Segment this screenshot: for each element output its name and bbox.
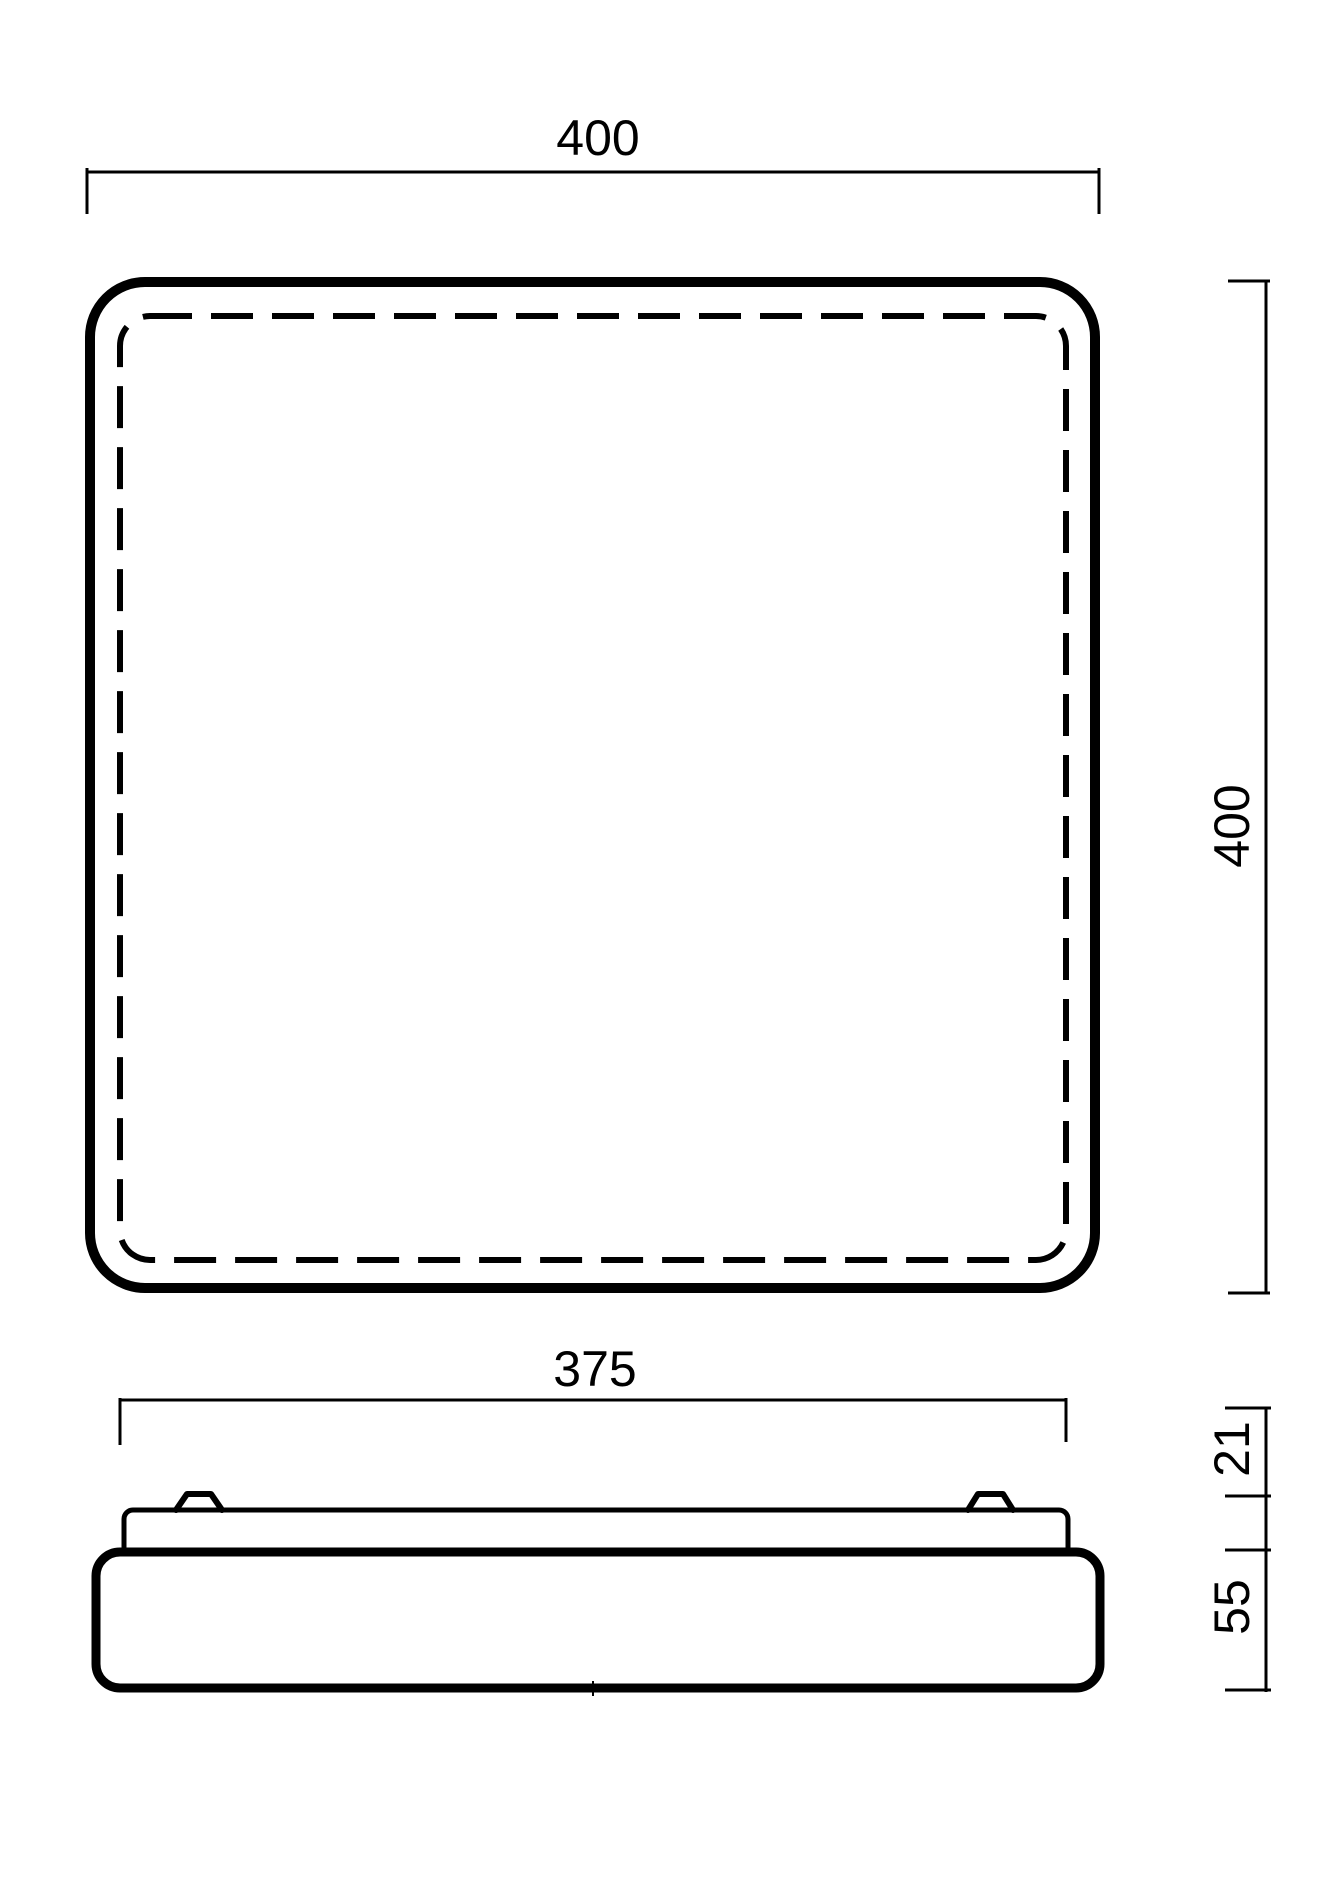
side-view bbox=[96, 1494, 1100, 1696]
dim-side-heights: 21 55 bbox=[1204, 1408, 1271, 1692]
dim-side-width: 375 bbox=[119, 1341, 1067, 1445]
dim-top-width: 400 bbox=[86, 110, 1100, 214]
dim-body-height-value: 55 bbox=[1204, 1579, 1260, 1635]
dim-right-height: 400 bbox=[1204, 280, 1270, 1294]
top-view bbox=[90, 282, 1095, 1288]
dim-side-width-value: 375 bbox=[553, 1341, 636, 1397]
side-view-diffuser-body bbox=[96, 1552, 1100, 1688]
dim-top-width-value: 400 bbox=[556, 110, 639, 166]
dim-mount-height-value: 21 bbox=[1204, 1421, 1260, 1477]
luminaire-dimension-drawing: 400 400 375 bbox=[0, 0, 1343, 1900]
technical-drawing-page: 400 400 375 bbox=[0, 0, 1343, 1900]
top-view-outer-housing-outline bbox=[90, 282, 1095, 1288]
drawing-root: 400 400 375 bbox=[86, 110, 1271, 1696]
dim-right-height-value: 400 bbox=[1204, 784, 1260, 867]
